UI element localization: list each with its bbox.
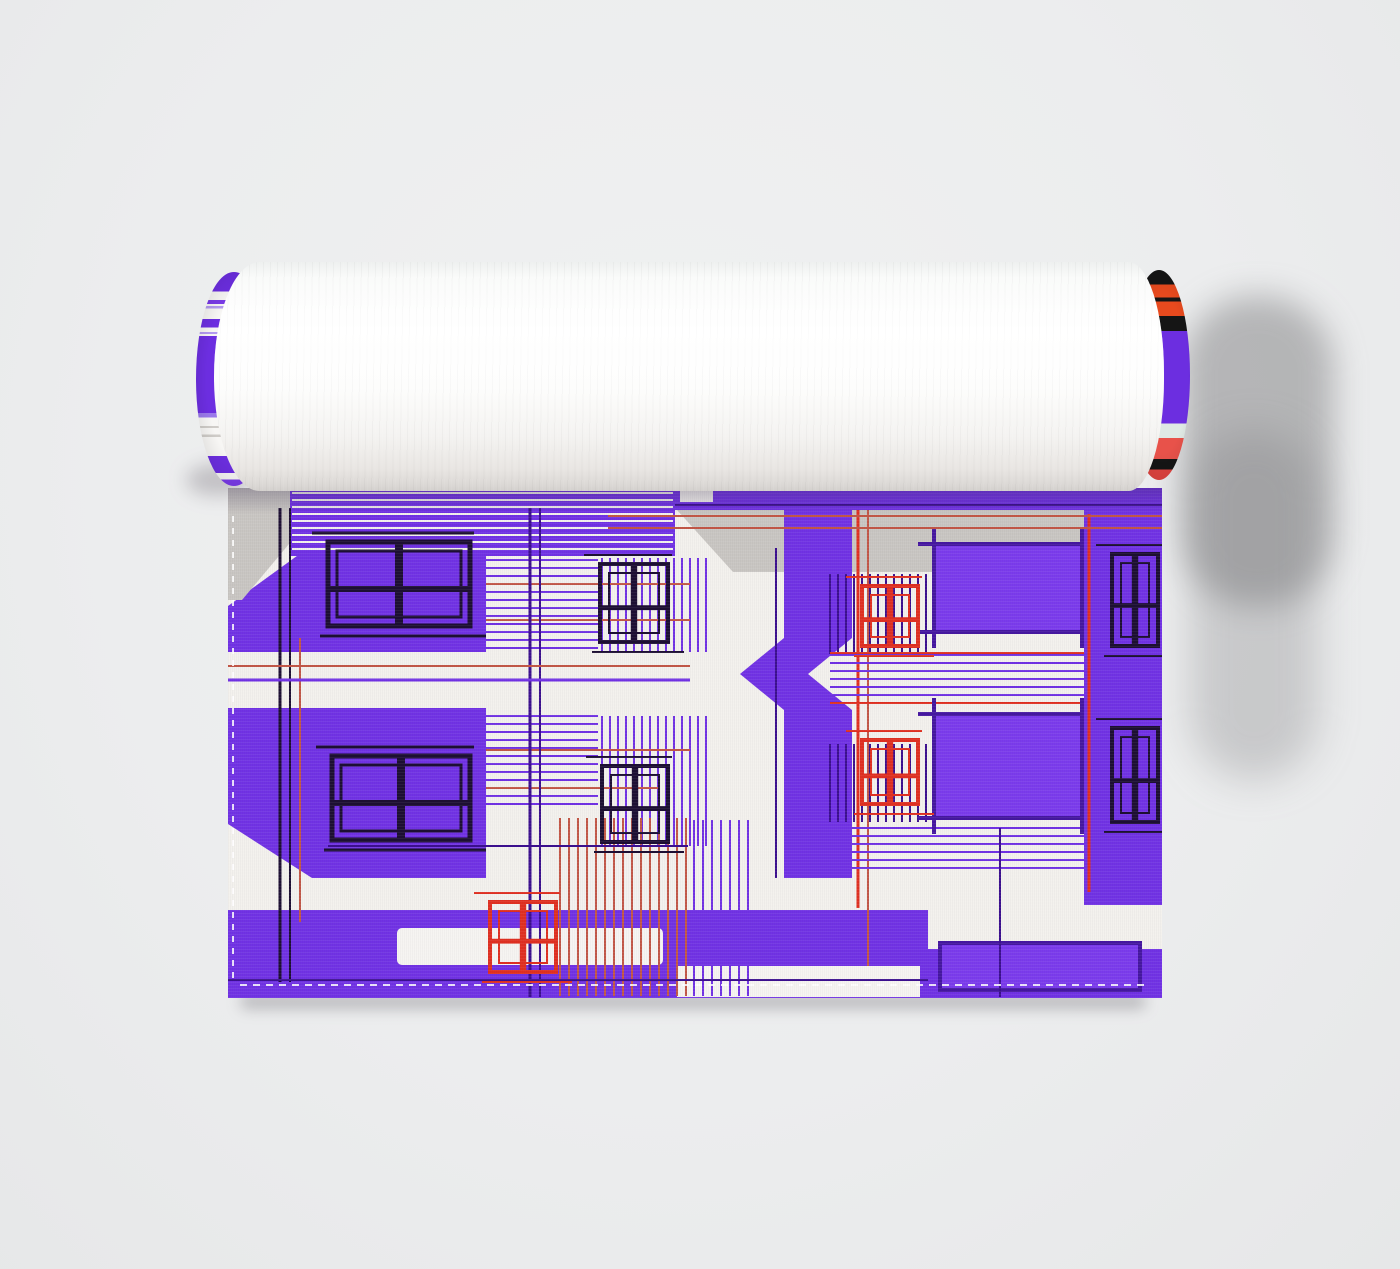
cast-shadow-right-lower bbox=[1190, 430, 1318, 780]
roll-body-white-fabric bbox=[214, 262, 1164, 491]
towel-flat-printed-panel bbox=[228, 488, 1162, 998]
towel-print-pattern bbox=[228, 488, 1162, 998]
towel-roll bbox=[196, 262, 1190, 492]
product-photo-stage bbox=[0, 0, 1400, 1269]
